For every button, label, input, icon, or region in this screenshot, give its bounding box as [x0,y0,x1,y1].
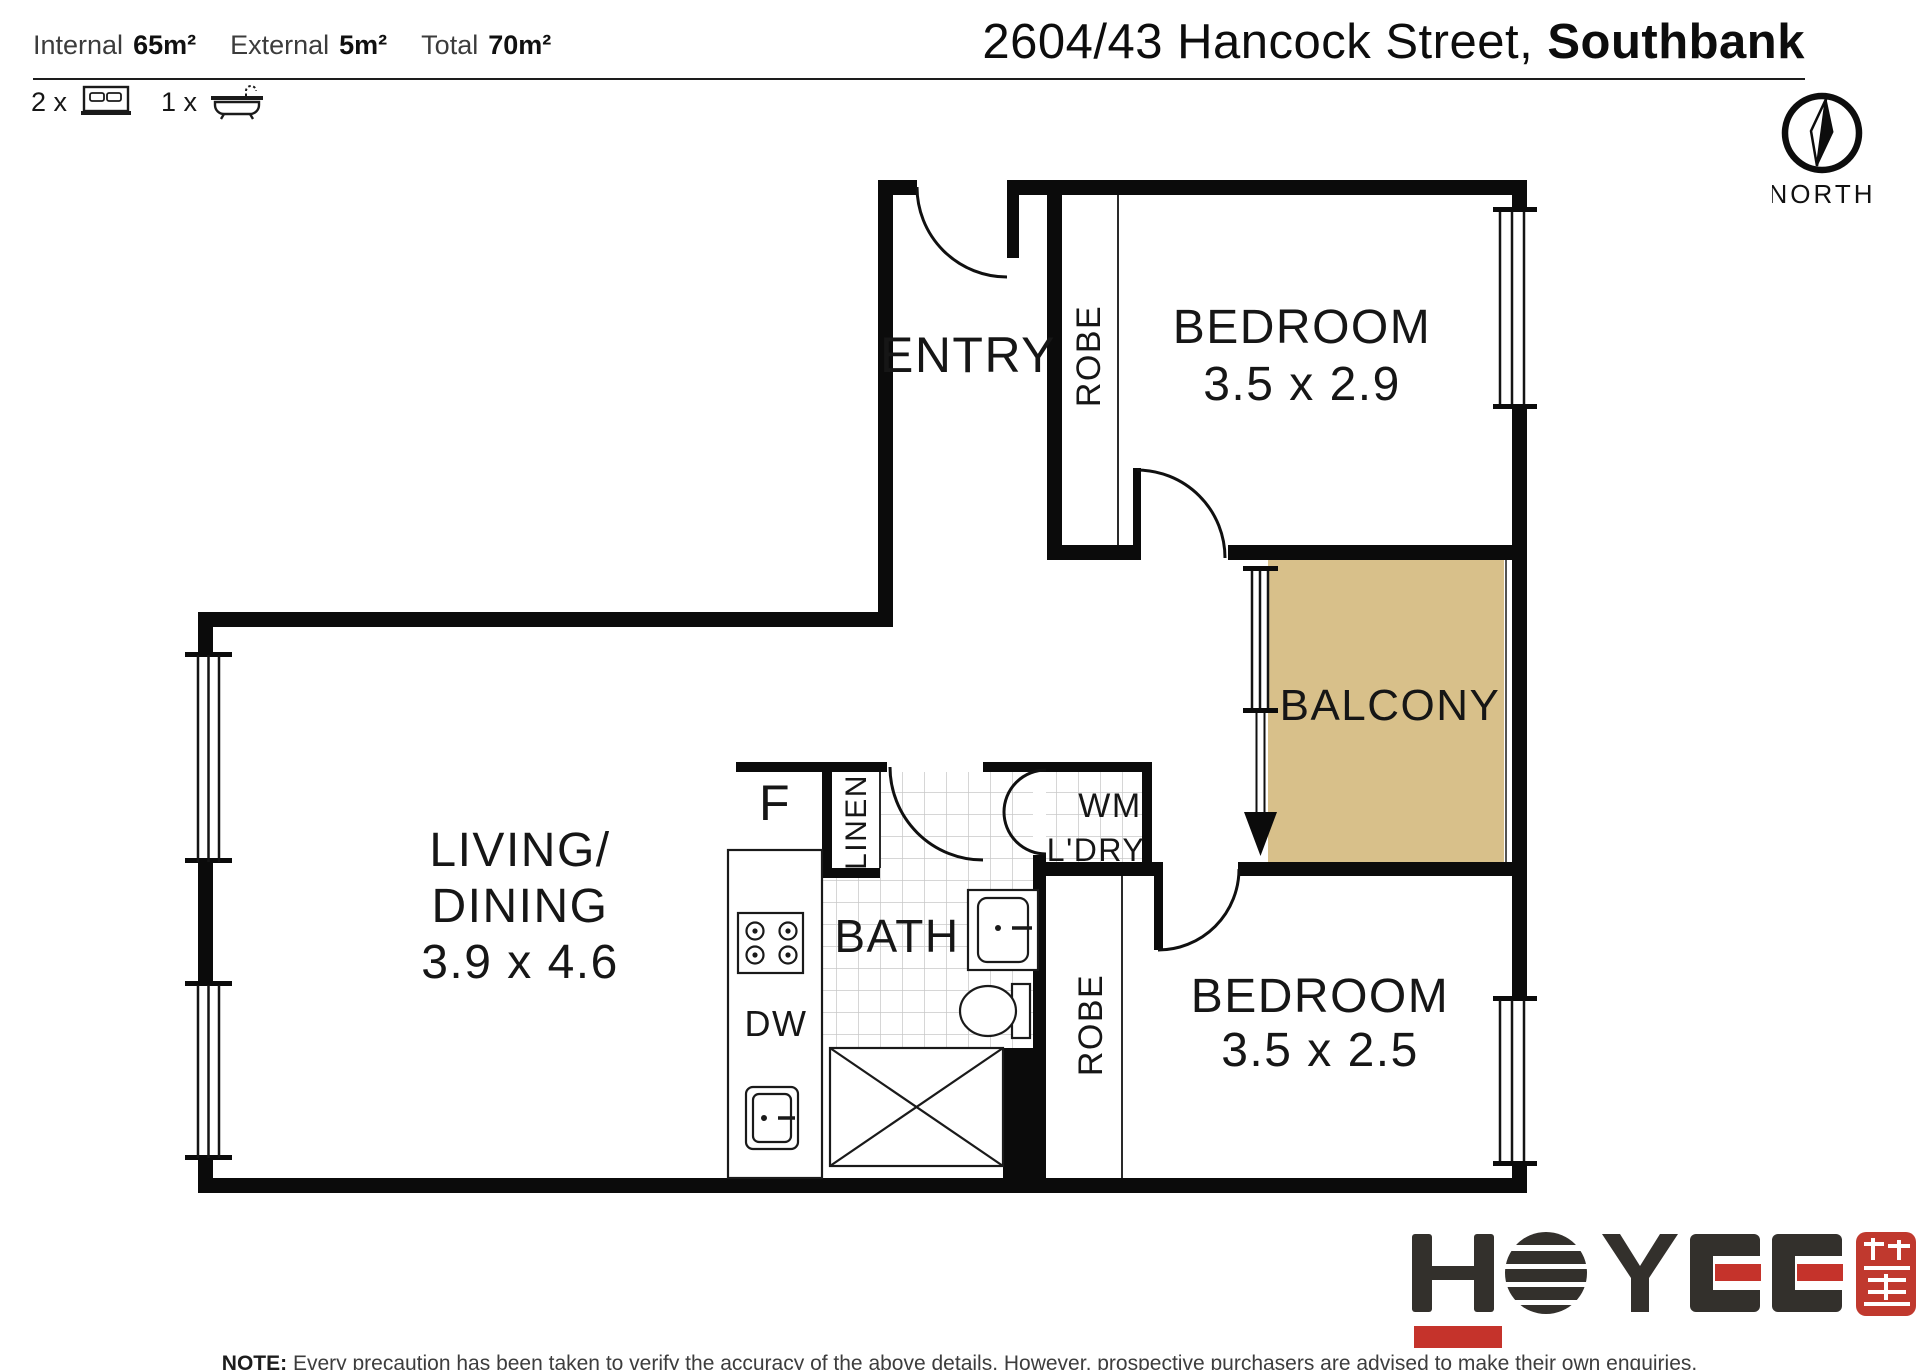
robe2-label: ROBE [1072,974,1110,1076]
floorplan-drawing: ENTRY ROBE BEDROOM 3.5 x 2.9 BALCONY LIV… [0,0,1919,1370]
hoyee-logo [1412,1230,1919,1354]
bedroom1-dims: 3.5 x 2.9 [1203,358,1401,411]
logo-letter-o [1500,1232,1592,1318]
living-label-1: LIVING/ [429,824,610,877]
bedroom1-door-arc [1137,470,1225,558]
entry-door-arc [917,187,1007,277]
robe1-label: ROBE [1070,305,1108,407]
living-dims: 3.9 x 4.6 [421,936,619,989]
living-label-2: DINING [432,880,609,933]
note-text: Every precaution has been taken to verif… [293,1352,1697,1370]
floorplan-page: Internal 65m² External 5m² Total 70m² 2 … [0,0,1919,1370]
stove-icon [738,913,803,973]
laundry-label: L'DRY [1047,832,1145,868]
logo-letter-e [1690,1234,1761,1312]
kitchen-sink-icon [746,1087,798,1149]
bedroom2-dims: 3.5 x 2.5 [1221,1024,1419,1077]
vanity-sink-icon [968,890,1038,970]
disclaimer-note: NOTE: Every precaution has been taken to… [0,1352,1919,1370]
dishwasher-label: DW [745,1003,808,1044]
bedroom2-door-arc [1158,869,1239,950]
logo-red-bar [1414,1326,1502,1348]
linen-label: LINEN [840,774,873,870]
bath-label: BATH [834,910,959,962]
note-label: NOTE: [222,1352,287,1370]
entry-label: ENTRY [880,327,1056,383]
wm-label: WM [1078,787,1141,825]
logo-seal-icon [1856,1232,1916,1316]
balcony-label: BALCONY [1280,681,1501,730]
shower-box [830,1048,1003,1166]
logo-letter-y [1602,1234,1678,1312]
toilet-icon [960,984,1030,1038]
bedroom2-label: BEDROOM [1191,970,1450,1023]
logo-letter-e2 [1772,1234,1843,1312]
fridge-label: F [759,775,791,831]
logo-letter-h [1412,1234,1494,1312]
bedroom1-label: BEDROOM [1173,301,1432,354]
